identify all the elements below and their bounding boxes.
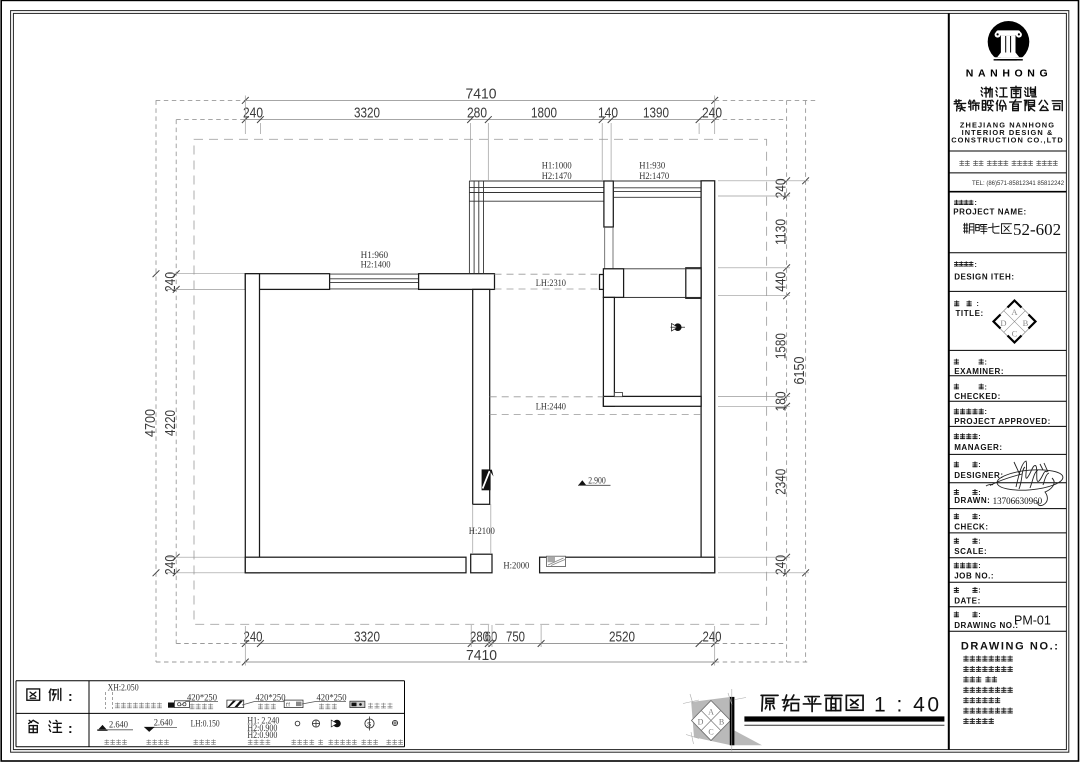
svg-text::: : [978,561,980,570]
svg-text:H2:1400: H2:1400 [361,261,391,271]
svg-text:JOB NO.:: JOB NO.: [954,572,994,581]
svg-text:280: 280 [467,106,487,122]
svg-text::: : [68,720,73,736]
svg-text::: : [985,382,987,391]
svg-text:CHECK:: CHECK: [954,523,988,532]
svg-text::: : [978,537,980,546]
svg-text:B: B [1023,318,1029,328]
svg-text:240: 240 [244,629,263,645]
svg-text:2.640: 2.640 [109,720,128,730]
svg-text:TEL: (86)571-85812341 8581: TEL: (86)571-85812341 85812242 [972,181,1065,187]
svg-text:DESIGN ITEH:: DESIGN ITEH: [954,273,1014,282]
svg-text:750: 750 [506,629,525,645]
svg-text::: : [977,301,979,308]
svg-text:LH:2310: LH:2310 [536,279,566,289]
svg-text:H2:1470: H2:1470 [542,172,572,182]
svg-text::: : [978,512,980,521]
svg-text:240: 240 [703,629,722,645]
svg-text:DRAWING NO.:: DRAWING NO.: [954,621,1018,630]
svg-text:PROJECT NAME:: PROJECT NAME: [953,208,1026,217]
svg-text:DESIGNER:: DESIGNER: [954,471,1003,480]
svg-text:H1:930: H1:930 [639,161,665,171]
svg-text:7410: 7410 [466,87,497,103]
svg-text:D: D [1000,318,1006,328]
svg-text::: : [985,407,987,416]
svg-text:CONSTRUCTION CO.,LTD: CONSTRUCTION CO.,LTD [951,136,1064,145]
svg-text:B: B [719,718,724,727]
svg-text:DRAWING NO.:: DRAWING NO.: [961,641,1060,653]
svg-text:1130: 1130 [773,219,789,245]
svg-text:1 : 40: 1 : 40 [874,694,942,717]
svg-text:CHECKED:: CHECKED: [954,392,1001,401]
svg-text:3320: 3320 [354,106,380,122]
svg-text:EXAMINER:: EXAMINER: [954,367,1004,376]
svg-text:S: S [367,722,372,729]
svg-text:2.900: 2.900 [588,475,606,485]
svg-text:TITLE:: TITLE: [956,309,984,318]
svg-text:60: 60 [485,629,498,645]
svg-text:SCALE:: SCALE: [954,547,987,556]
svg-text::: : [978,586,980,595]
svg-text::: : [978,432,980,441]
svg-text:4220: 4220 [163,410,179,436]
svg-text:H1:960: H1:960 [361,251,389,261]
svg-text:LH:2440: LH:2440 [536,403,566,413]
svg-text:2520: 2520 [609,629,635,645]
svg-text:240: 240 [163,555,179,575]
svg-text:XH:2.050: XH:2.050 [108,683,139,693]
svg-text::: : [978,460,980,469]
svg-text:240: 240 [773,555,789,575]
svg-text::: : [975,200,977,207]
svg-text:H1:1000: H1:1000 [542,161,572,171]
svg-text:LH:0.150: LH:0.150 [191,718,220,728]
svg-text:t'f: t'f [286,702,290,708]
svg-text:7410: 7410 [466,648,497,664]
svg-text:NANHONG: NANHONG [966,68,1052,80]
svg-text::: : [975,262,977,269]
svg-text:PM-01: PM-01 [1014,613,1051,627]
svg-text:13706630960: 13706630960 [993,496,1043,506]
svg-text:6150: 6150 [792,357,808,385]
svg-text:C: C [1012,329,1018,339]
svg-text:1580: 1580 [773,333,789,359]
svg-text:H:2100: H:2100 [469,527,495,537]
svg-text:A: A [1011,307,1018,317]
svg-text:240: 240 [702,106,722,122]
svg-text:440: 440 [773,272,789,292]
svg-text:2340: 2340 [773,469,789,495]
svg-text:1390: 1390 [643,106,669,122]
svg-text:240: 240 [163,272,179,292]
svg-text:D: D [698,718,704,727]
svg-text:4700: 4700 [143,409,159,437]
svg-text:A: A [708,708,714,717]
svg-text::: : [68,688,73,704]
svg-text:140: 140 [598,106,618,122]
svg-text:3320: 3320 [354,629,380,645]
svg-text:DATE:: DATE: [954,596,981,605]
svg-text::: : [985,357,987,366]
svg-text:H2:0.900: H2:0.900 [247,730,277,740]
svg-text:PROJECT APPROVED:: PROJECT APPROVED: [954,417,1051,426]
svg-text:240: 240 [773,178,789,198]
svg-text:H2:1470: H2:1470 [639,172,669,182]
svg-text:52-602: 52-602 [1013,220,1061,239]
svg-text:2.640: 2.640 [154,717,173,727]
svg-text:240: 240 [243,106,263,122]
svg-text::: : [978,610,980,619]
svg-text:180: 180 [773,391,789,411]
svg-text:DRAWN:: DRAWN: [954,496,990,505]
svg-text:H:2000: H:2000 [503,562,529,572]
svg-text:1800: 1800 [531,106,557,122]
svg-text:C: C [708,728,713,737]
svg-text:MANAGER:: MANAGER: [954,443,1002,452]
